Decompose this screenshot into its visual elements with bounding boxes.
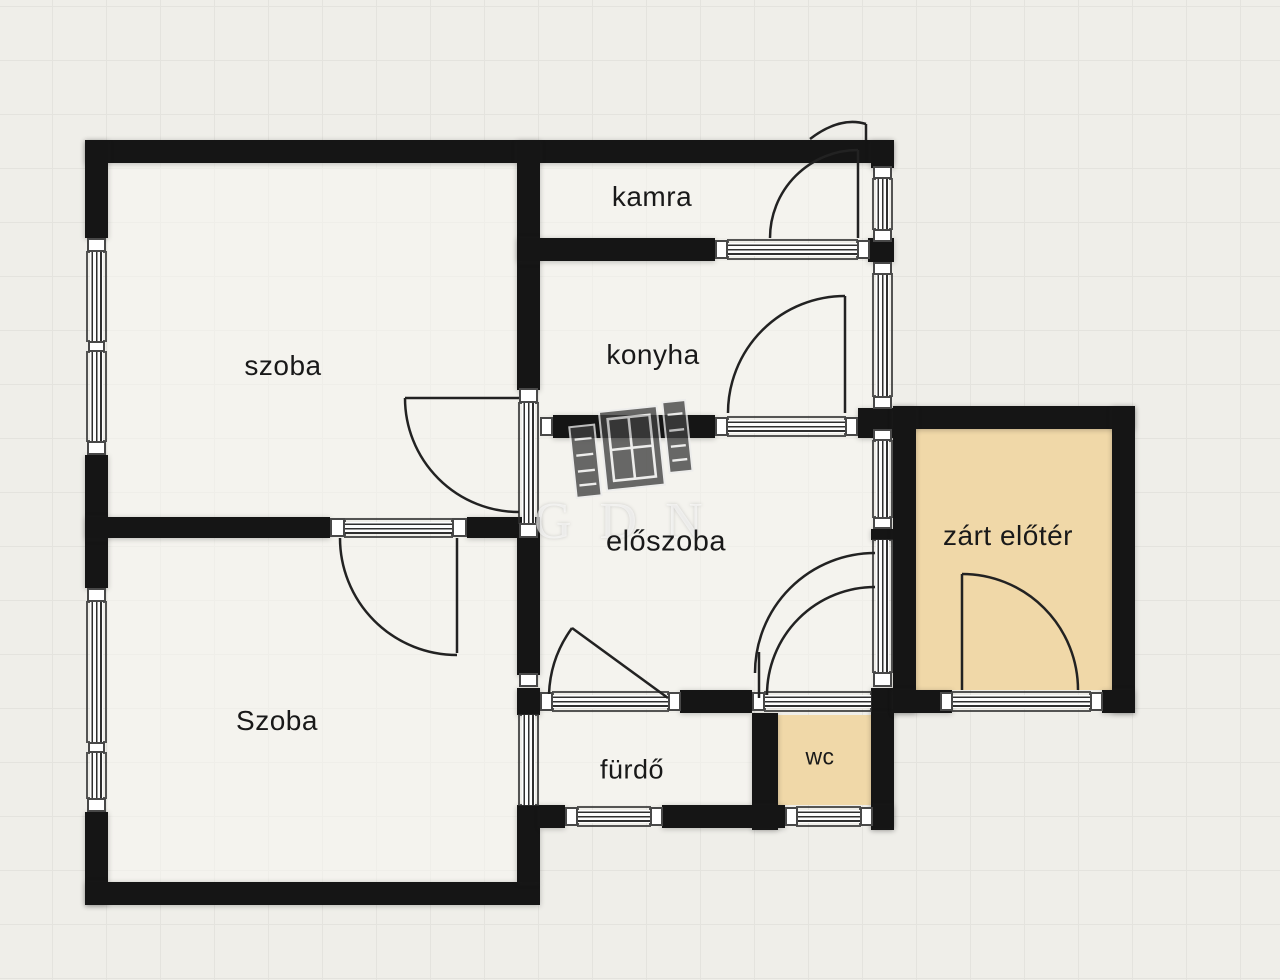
room-label-zart-eloter: zárt előtér xyxy=(943,520,1073,552)
room-label-szoba-top: szoba xyxy=(244,350,321,382)
watermark-logo-icon xyxy=(0,0,1280,980)
room-label-szoba-bottom: Szoba xyxy=(236,705,318,737)
floor-plan: GDN szoba kamra konyha előszoba Szoba fü… xyxy=(0,0,1280,980)
room-label-furdo: fürdő xyxy=(600,755,664,786)
room-label-wc: wc xyxy=(805,744,834,771)
room-label-eloszoba: előszoba xyxy=(606,526,726,559)
room-label-kamra: kamra xyxy=(612,181,692,213)
room-label-konyha: konyha xyxy=(606,339,699,371)
